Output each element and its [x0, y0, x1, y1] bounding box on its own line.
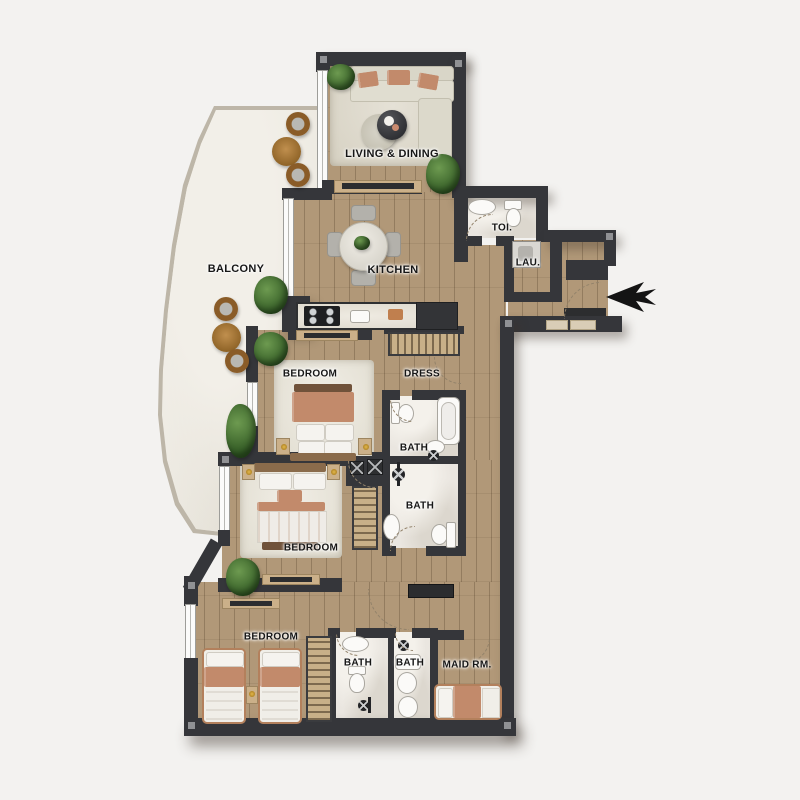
balcony-chair [286, 163, 310, 187]
label-bedroom-2: BEDROOM [284, 543, 338, 554]
wall [550, 240, 562, 300]
wall [388, 628, 394, 722]
label-bath-4: BATH [396, 658, 424, 669]
bedroom-3-window [185, 604, 196, 662]
sink-icon [468, 199, 496, 215]
label-bath-3: BATH [344, 658, 372, 669]
lamp-icon [246, 469, 252, 475]
plant-icon [226, 404, 256, 458]
shoe-bench [570, 320, 596, 330]
balcony-chair [214, 297, 238, 321]
plant-icon [254, 276, 288, 314]
label-bedroom-1: BEDROOM [283, 369, 337, 380]
wall [456, 186, 548, 198]
dresser-bar [270, 577, 312, 582]
sofa-pillow [387, 70, 410, 85]
bed-headboard [290, 453, 356, 461]
balcony-table [212, 323, 241, 352]
label-living-dining: LIVING & DINING [345, 148, 439, 160]
wall [184, 658, 198, 722]
cutting-board-icon [388, 309, 403, 320]
label-bath-1: BATH [400, 443, 428, 454]
wall [500, 316, 514, 732]
plant-icon [226, 558, 260, 596]
tv-icon [342, 183, 414, 189]
sofa-pillow [417, 72, 439, 90]
plant-icon [327, 64, 355, 90]
wall-corner [220, 454, 231, 465]
lamp-icon [363, 444, 369, 450]
bathtub-basin [441, 402, 456, 440]
bed-pillow [262, 652, 300, 667]
bed-pillow [206, 652, 244, 667]
bed-duvet [292, 392, 354, 422]
bed-pillow [259, 473, 292, 490]
label-balcony: BALCONY [208, 263, 265, 275]
dresser-bar [230, 601, 272, 606]
bed-duvet [206, 689, 242, 720]
shoe-bench [546, 320, 568, 330]
bed-blanket [453, 686, 481, 718]
wall [436, 630, 464, 640]
floor-plan: LIVING & DINING BALCONY KITCHEN TOI. LAU… [0, 0, 800, 800]
balcony-table [272, 137, 301, 166]
toilet-icon [349, 673, 365, 693]
bed-blanket-band [257, 502, 325, 511]
shower-drain-icon [358, 700, 369, 711]
bed-duvet [257, 511, 327, 543]
wall [454, 192, 468, 262]
bed-blanket [260, 667, 300, 687]
label-maid-room: MAID RM. [442, 660, 491, 671]
bed-duvet [262, 689, 298, 720]
bidet-icon [398, 696, 418, 718]
tv-icon [304, 333, 350, 338]
bed-pillow [438, 688, 453, 718]
table-plant-icon [354, 236, 370, 250]
label-bath-2: BATH [406, 501, 434, 512]
wall-corner [453, 58, 464, 69]
fridge-icon [416, 302, 458, 330]
entry-arrow-icon [604, 280, 658, 314]
sofa-pillow [357, 71, 379, 89]
lamp-icon [281, 444, 287, 450]
balcony-chair [225, 349, 249, 373]
label-toilet: TOI. [492, 223, 512, 234]
label-dress: DRESS [404, 369, 440, 380]
bedroom-2-window [219, 466, 230, 534]
bedroom-2-closet [352, 486, 378, 550]
bed-accent-pillow [277, 490, 302, 502]
toilet-icon [397, 672, 417, 694]
living-balcony-window [317, 70, 328, 198]
plant-icon [254, 332, 288, 366]
label-kitchen: KITCHEN [368, 264, 419, 276]
wall-corner [186, 720, 197, 731]
stove-icon [304, 306, 340, 326]
table-decor [392, 124, 399, 131]
bed-blanket [204, 667, 244, 687]
bed-pillow [325, 424, 354, 441]
wall-corner [503, 318, 514, 329]
shower-mixer-icon [428, 450, 439, 461]
lamp-icon [249, 691, 255, 697]
dress-wardrobe [388, 332, 460, 356]
wall-corner [502, 720, 513, 731]
label-bedroom-3: BEDROOM [244, 632, 298, 643]
bed-bench [294, 384, 352, 392]
wall-corner [604, 231, 615, 242]
bed-pillow [293, 473, 326, 490]
wall-corner [318, 54, 329, 65]
bed-duvet [482, 688, 500, 718]
wall-corner [186, 580, 197, 591]
shower-mixer-icon [392, 468, 405, 481]
corridor-console [408, 584, 454, 598]
label-laundry: LAU. [516, 258, 541, 269]
bed-pillow [296, 424, 325, 441]
plant-icon [426, 154, 460, 194]
dining-chair [351, 205, 376, 221]
toilet-tank [446, 522, 456, 548]
lamp-icon [331, 469, 337, 475]
kitchen-sink-icon [350, 310, 370, 323]
balcony-chair [286, 112, 310, 136]
bed-headboard [254, 463, 326, 472]
wall-entry-closet [566, 260, 608, 280]
wall [504, 292, 562, 302]
bedroom-3-closet [306, 636, 332, 722]
